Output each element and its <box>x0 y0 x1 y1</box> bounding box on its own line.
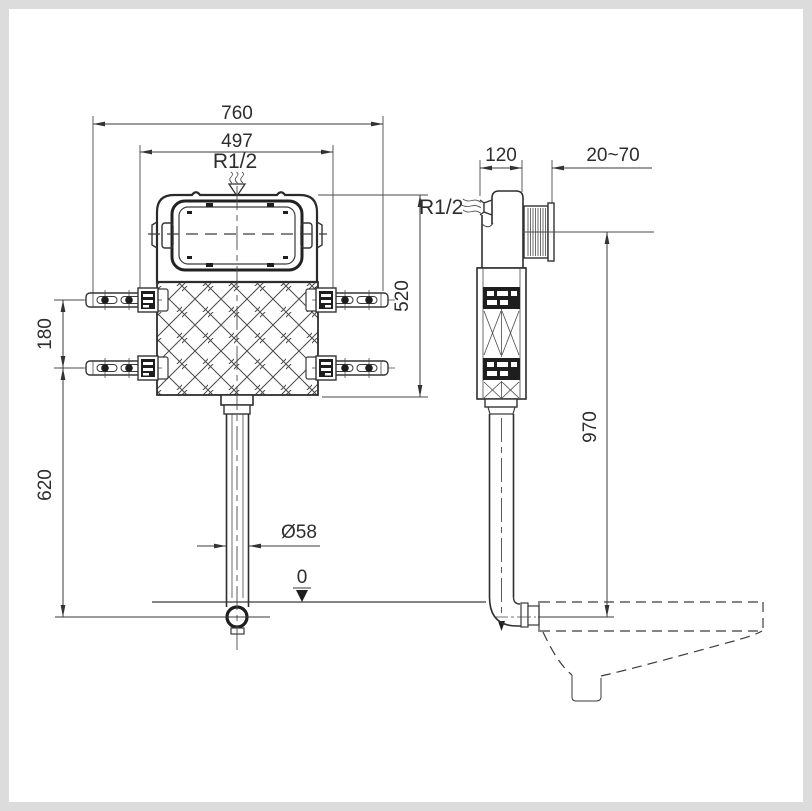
dim-620-label: 620 <box>35 469 56 501</box>
dim-r12-side-label: R1/2 <box>419 196 463 219</box>
dim-d58-label: Ø58 <box>281 522 317 543</box>
dim-497-label: 497 <box>221 131 253 152</box>
tank-lid <box>148 192 327 282</box>
dim-180-label: 180 <box>35 318 56 350</box>
dim-120-label: 120 <box>485 145 517 166</box>
drawing-canvas <box>9 9 803 802</box>
dim-520-label: 520 <box>392 280 413 312</box>
dim-2070-label: 20~70 <box>586 145 639 166</box>
tank-body <box>157 282 318 395</box>
dim-r12-front-label: R1/2 <box>213 150 257 173</box>
dim-760-label: 760 <box>221 103 253 124</box>
datum-label: 0 <box>297 567 308 588</box>
installation-drawing: 760 497 R1/2 <box>0 0 812 811</box>
rail-end-block-lower <box>483 358 520 380</box>
dim-970-label: 970 <box>580 411 601 443</box>
rail-end-block-upper <box>483 287 520 309</box>
